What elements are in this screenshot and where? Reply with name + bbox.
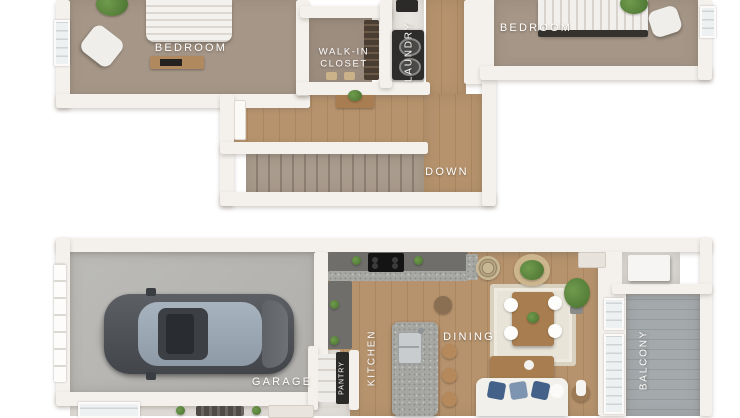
- bedroom-right-label: BEDROOM: [500, 21, 572, 35]
- burner: [392, 263, 398, 269]
- garage-door: [54, 264, 66, 382]
- sink-divider: [399, 346, 419, 348]
- balcony-closet-wall: [612, 284, 712, 294]
- closet-mat: [344, 72, 355, 80]
- plant-icon: [330, 336, 339, 345]
- closet-mat: [326, 72, 337, 80]
- side-table-towel: [576, 380, 586, 396]
- car-mirror: [146, 372, 156, 380]
- coffee-table: [490, 356, 554, 378]
- plant-icon: [176, 406, 185, 415]
- hall-door: [234, 100, 246, 140]
- floor-plan-canvas: { "image_type": "3d-floor-plan-two-level…: [0, 0, 740, 416]
- bedroom-left-label: BEDROOM: [155, 41, 227, 55]
- pillow: [530, 380, 550, 400]
- burner: [372, 263, 378, 269]
- dining-chair: [548, 296, 562, 310]
- bar-stool: [442, 392, 457, 407]
- balcony-label: BALCONY: [638, 330, 651, 390]
- tall-plant: [564, 278, 590, 308]
- desk-chair: [434, 296, 452, 314]
- entry-door: [268, 405, 314, 418]
- doormat: [196, 406, 244, 416]
- island-sink: [398, 332, 422, 364]
- dining-chair: [504, 298, 518, 312]
- car-sunroof: [166, 314, 194, 354]
- round-pillow: [550, 384, 564, 398]
- pantry-label: PANTRY: [337, 361, 346, 395]
- dining-chair: [504, 326, 518, 340]
- window-icon: [700, 6, 716, 38]
- dining-chair: [548, 324, 562, 338]
- pillow: [509, 381, 528, 400]
- plant-icon: [330, 300, 339, 309]
- plant-icon: [352, 256, 361, 265]
- plant-icon: [414, 256, 423, 265]
- water-heater: [628, 255, 670, 281]
- table-centerpiece: [527, 312, 539, 323]
- walk-in-closet-label: WALK-IN CLOSET: [319, 47, 369, 72]
- dresser-items: [160, 59, 182, 66]
- stairs-down-label: DOWN: [425, 165, 469, 179]
- round-wall-art: [476, 256, 500, 280]
- pantry-east-wall: [349, 350, 359, 410]
- sliding-glass-door: [604, 334, 624, 414]
- tray: [524, 360, 534, 370]
- plant-icon: [520, 260, 544, 280]
- bar-stool: [442, 368, 457, 383]
- faucet: [418, 328, 424, 334]
- kitchen-counter: [328, 271, 468, 281]
- garage-label: GARAGE: [252, 375, 312, 389]
- kitchen-label: KITCHEN: [366, 330, 379, 387]
- bed-left: [146, 0, 232, 42]
- linen-cabinet-appliance: [396, 0, 418, 12]
- laundry-label: LAUNDRY: [403, 22, 416, 82]
- pillow: [487, 381, 507, 401]
- window-icon: [54, 20, 70, 66]
- lower-east-wall: [700, 238, 712, 416]
- pantry-shelves: [318, 354, 336, 402]
- dining-label: DINING: [443, 330, 495, 344]
- bar-stool: [442, 344, 457, 359]
- entry-door-upper: [578, 252, 606, 268]
- car-hood: [262, 300, 288, 368]
- garage-kitchen-wall: [314, 252, 328, 356]
- plant-icon: [348, 90, 362, 101]
- lower-north-wall: [56, 238, 712, 252]
- plant-icon: [252, 406, 261, 415]
- car-mirror: [146, 288, 156, 296]
- window-icon: [604, 298, 624, 330]
